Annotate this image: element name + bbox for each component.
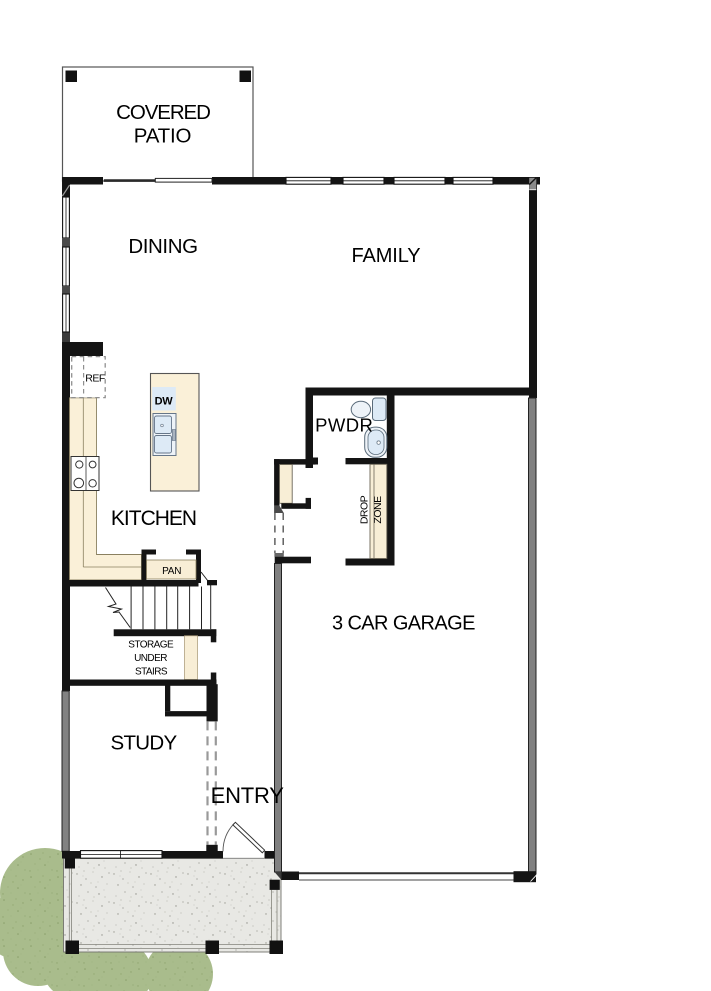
svg-text:DROP: DROP	[359, 495, 371, 524]
svg-text:PWDR: PWDR	[315, 415, 373, 436]
svg-text:DINING: DINING	[128, 235, 197, 258]
svg-text:FAMILY: FAMILY	[351, 245, 420, 267]
svg-text:COVERED: COVERED	[116, 101, 210, 124]
svg-text:ZONE: ZONE	[372, 496, 384, 524]
svg-text:3 CAR GARAGE: 3 CAR GARAGE	[332, 613, 475, 635]
svg-text:ENTRY: ENTRY	[211, 783, 285, 808]
svg-text:DW: DW	[155, 395, 174, 407]
svg-text:STAIRS: STAIRS	[135, 667, 168, 678]
svg-text:REF: REF	[85, 373, 105, 385]
svg-text:PATIO: PATIO	[134, 125, 191, 148]
svg-text:UNDER: UNDER	[134, 653, 167, 664]
svg-text:STUDY: STUDY	[111, 732, 178, 755]
svg-text:STORAGE: STORAGE	[128, 640, 174, 651]
svg-text:PAN: PAN	[162, 566, 181, 577]
svg-text:KITCHEN: KITCHEN	[111, 507, 196, 530]
